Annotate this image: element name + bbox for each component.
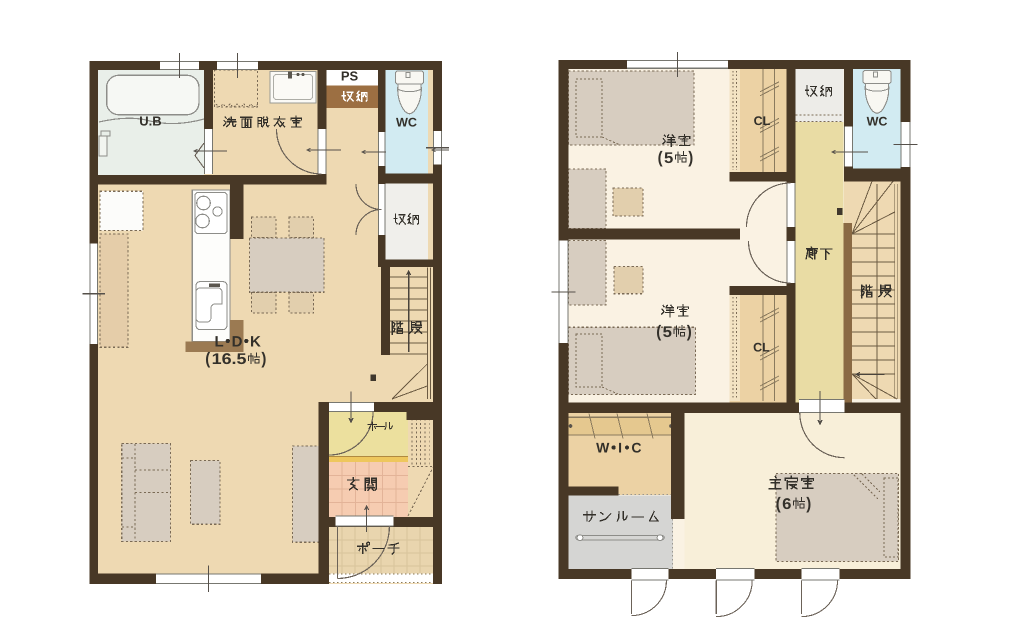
svg-text:D: D [232, 333, 243, 350]
svg-text:6: 6 [782, 496, 792, 513]
svg-text:I: I [618, 440, 622, 456]
svg-text:(: ( [205, 349, 210, 368]
svg-text:CL: CL [753, 341, 770, 355]
svg-text:(: ( [658, 148, 663, 167]
svg-text:PS: PS [341, 69, 359, 84]
svg-text:CL: CL [754, 114, 771, 128]
svg-text:(: ( [776, 494, 781, 513]
svg-text:L: L [215, 333, 224, 350]
svg-text:16.5: 16.5 [212, 351, 247, 368]
svg-text:): ) [261, 349, 266, 368]
svg-text:): ) [806, 494, 811, 513]
svg-text:): ) [687, 322, 692, 341]
svg-text:(: ( [656, 322, 661, 341]
svg-text:5: 5 [664, 150, 674, 167]
svg-text:W: W [596, 440, 610, 456]
svg-text:WC: WC [867, 115, 888, 129]
svg-text:K: K [250, 333, 261, 350]
svg-text:5: 5 [663, 324, 673, 341]
svg-text:WC: WC [396, 115, 417, 129]
svg-text:C: C [631, 440, 641, 456]
svg-text:): ) [688, 148, 693, 167]
svg-text:U.B: U.B [139, 114, 161, 129]
